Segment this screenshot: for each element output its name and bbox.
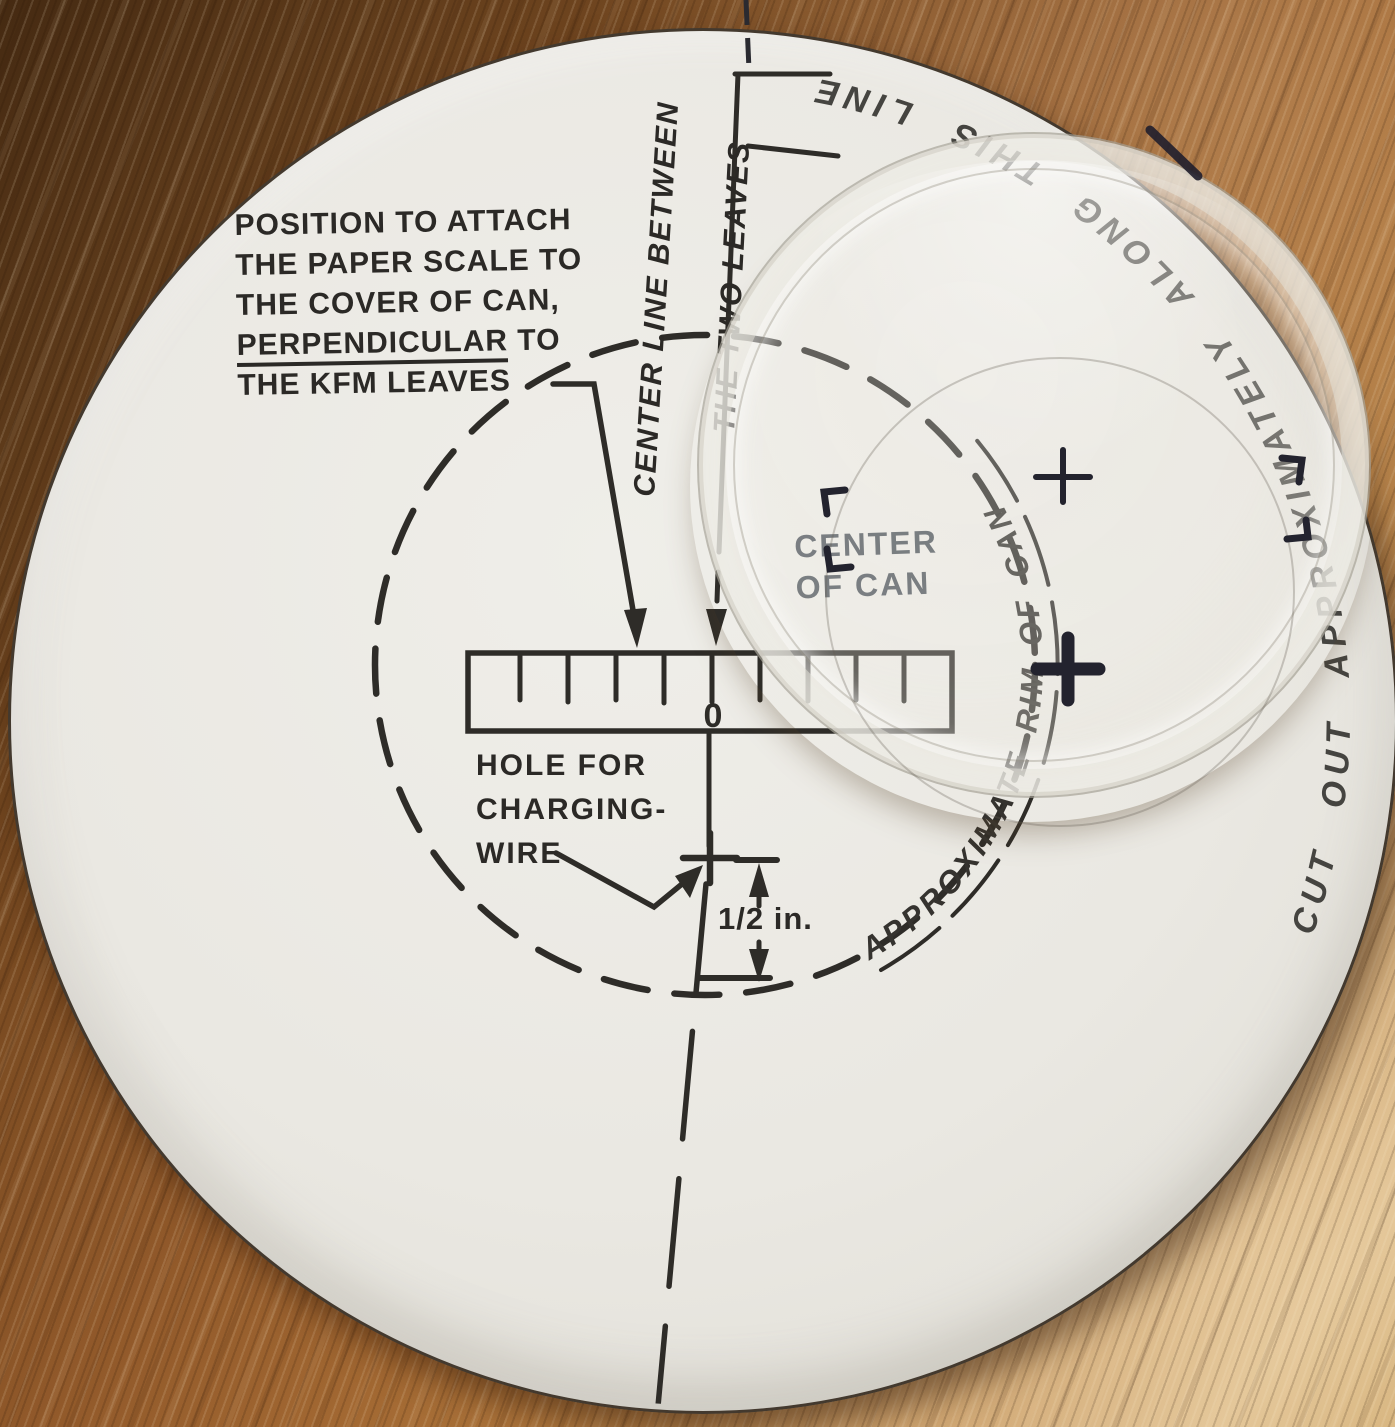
- scratch-circle: [826, 358, 1294, 826]
- corner-bracket-bottom-right-icon: [1287, 520, 1308, 539]
- bold-cross-mark-icon: [1037, 638, 1099, 700]
- thin-cross-mark-icon: [1036, 450, 1090, 502]
- corner-bracket-top-right-icon: [1282, 458, 1302, 482]
- photo-scene: 0 APPROXIMATE RIM OF CAN CUT OUT APPROXI…: [0, 0, 1395, 1427]
- corner-bracket-top-left-icon: [824, 490, 845, 514]
- corner-bracket-bottom-left-icon: [827, 549, 851, 569]
- lid-edge-pen-stroke: [1150, 130, 1198, 176]
- lid-pen-marks-layer: [0, 0, 1395, 1427]
